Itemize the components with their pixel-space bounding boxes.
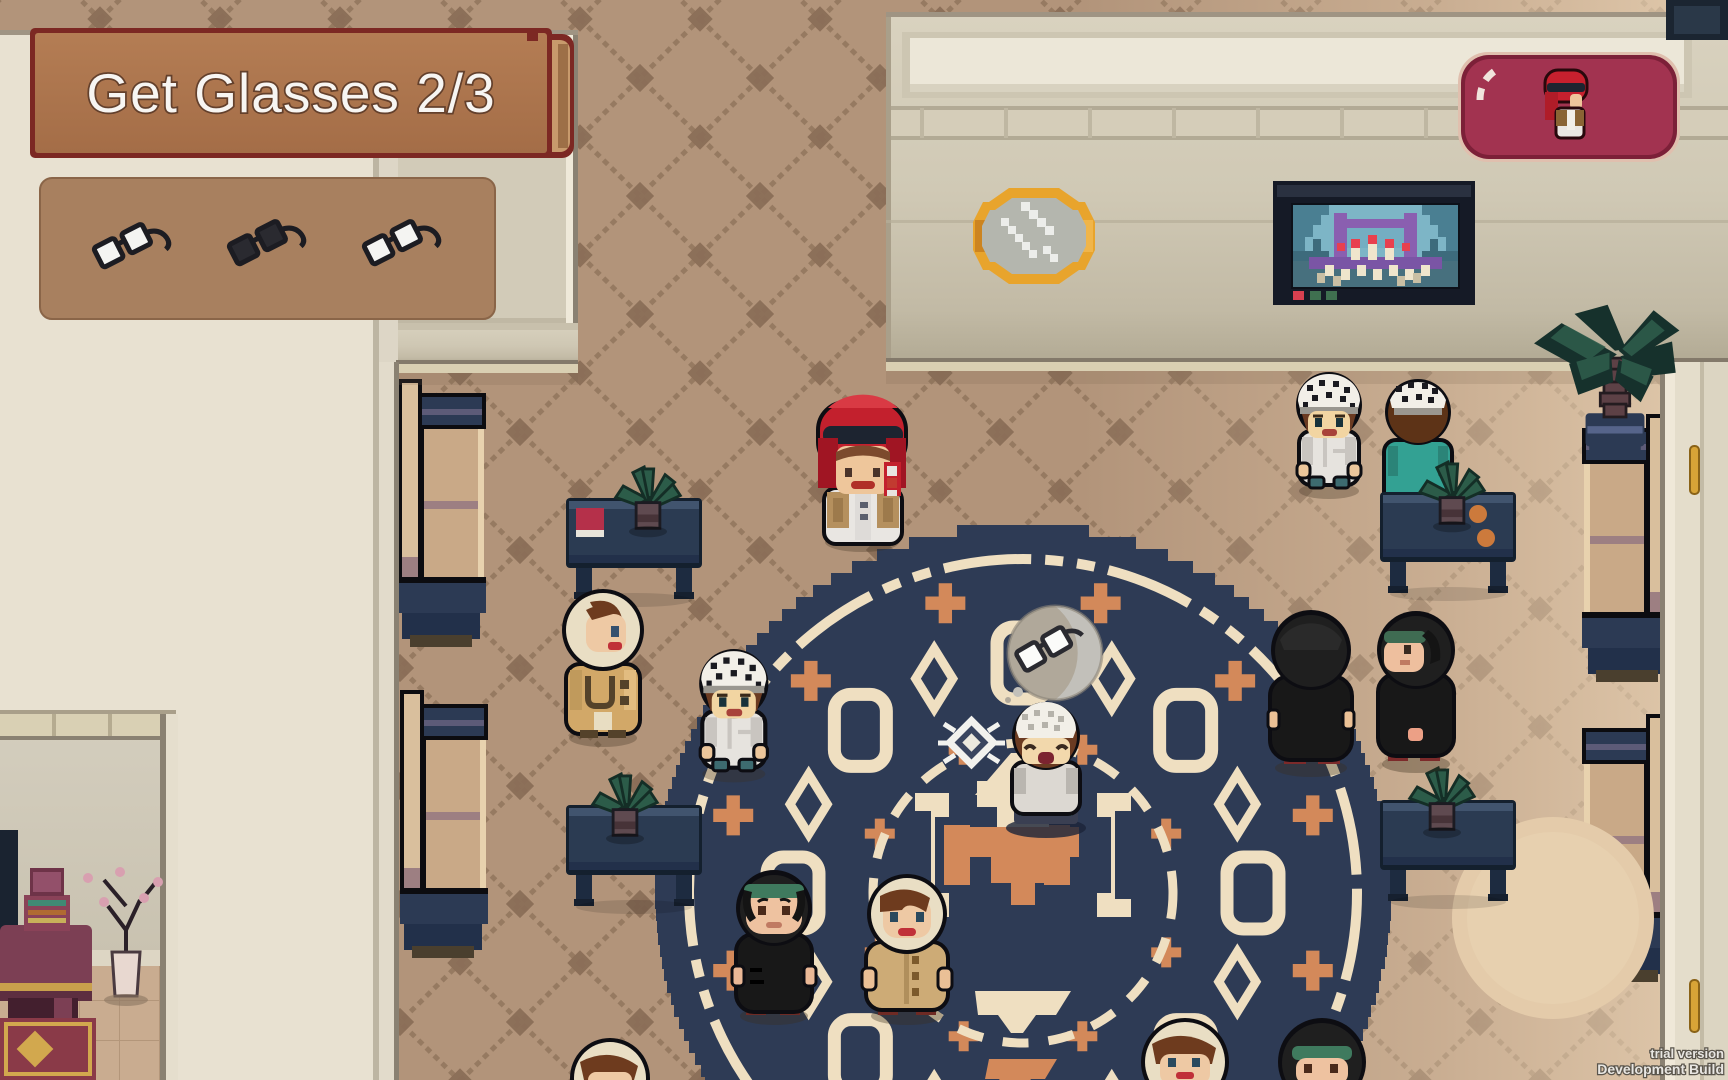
svg-text:Development Build: Development Build: [1597, 1061, 1724, 1077]
svg-text:Get Glasses 2/3: Get Glasses 2/3: [86, 62, 495, 124]
svg-text:trial version: trial version: [1650, 1046, 1724, 1061]
